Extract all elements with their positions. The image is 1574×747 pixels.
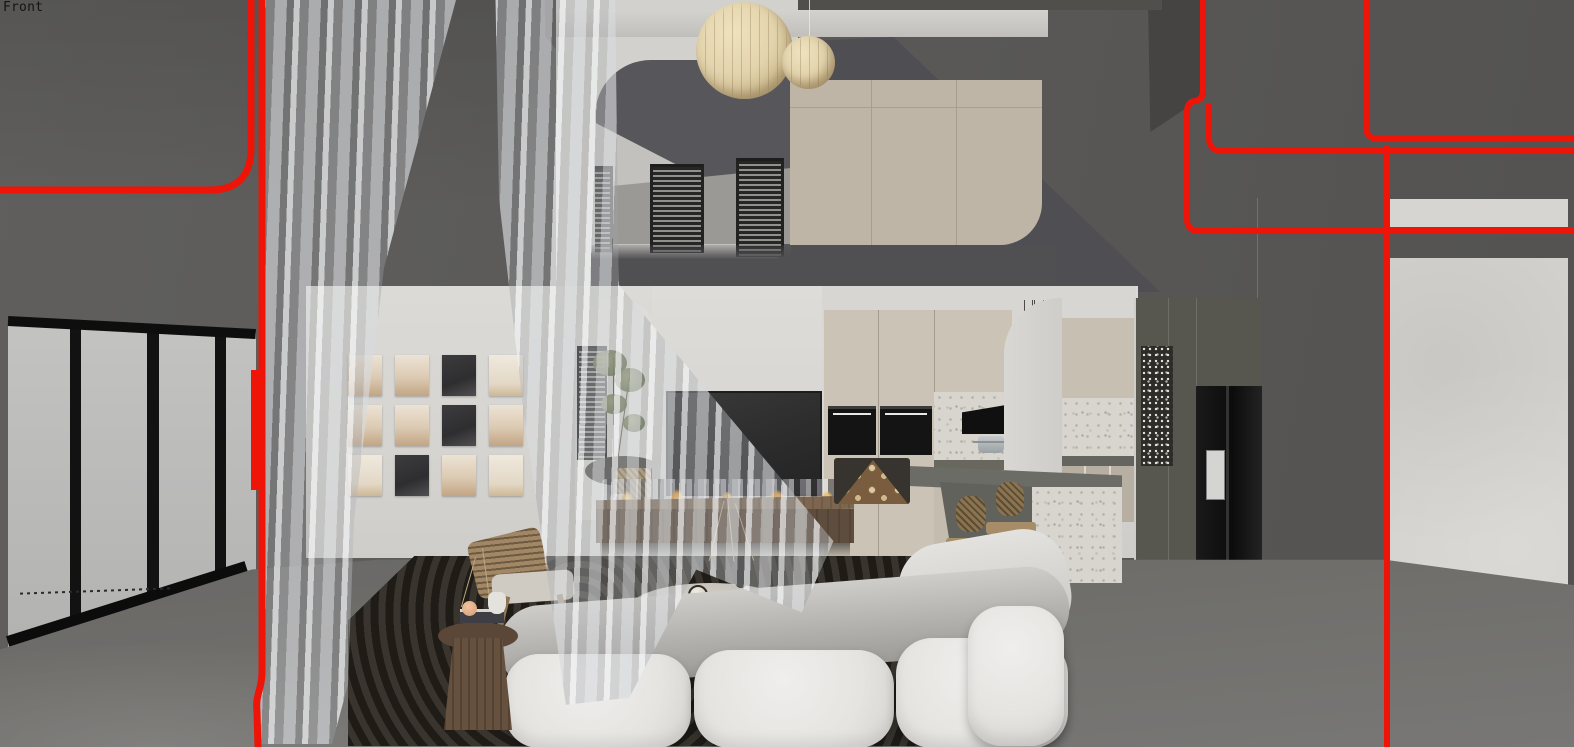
stone-feature-strip [1141,346,1173,466]
pendant-cord [809,0,810,40]
framed-artwork[interactable] [442,455,476,496]
white-vase[interactable] [488,592,506,614]
terrazzo-backsplash [1060,398,1136,456]
gallery-art-grid [348,355,523,496]
framed-artwork[interactable] [489,405,523,446]
framed-artwork[interactable] [442,405,476,446]
fridge-water-dispenser [1206,450,1225,500]
glass-pane[interactable] [8,316,70,650]
wall-oven[interactable] [828,406,876,455]
cooking-pot[interactable] [978,436,1004,453]
framed-artwork[interactable] [395,455,429,496]
3d-viewport[interactable]: Front [0,0,1574,747]
mezzanine-beam [556,10,1048,37]
louver-window[interactable] [736,158,784,257]
cabinet-seam [878,310,879,560]
wardrobe-cabinet[interactable] [790,80,1042,245]
framed-artwork[interactable] [442,355,476,396]
wall-oven[interactable] [880,406,932,455]
sofa-ottoman[interactable] [968,606,1064,746]
sofa-seat-module[interactable] [694,650,894,747]
framed-artwork[interactable] [489,455,523,496]
framed-artwork[interactable] [395,355,429,396]
camera-view-label: Front [3,0,43,15]
rattan-lantern-small[interactable] [782,36,835,89]
door-mullion [70,316,81,650]
kitchen-upper-cabinets[interactable] [1060,318,1136,398]
decor-sphere[interactable] [462,601,477,616]
rattan-lantern-large[interactable] [696,2,793,99]
plaster-ledge [1390,199,1568,227]
mezzanine-fascia [556,245,1056,292]
framed-artwork[interactable] [395,405,429,446]
louver-window[interactable] [650,164,704,253]
drum-side-table-base [444,638,512,730]
